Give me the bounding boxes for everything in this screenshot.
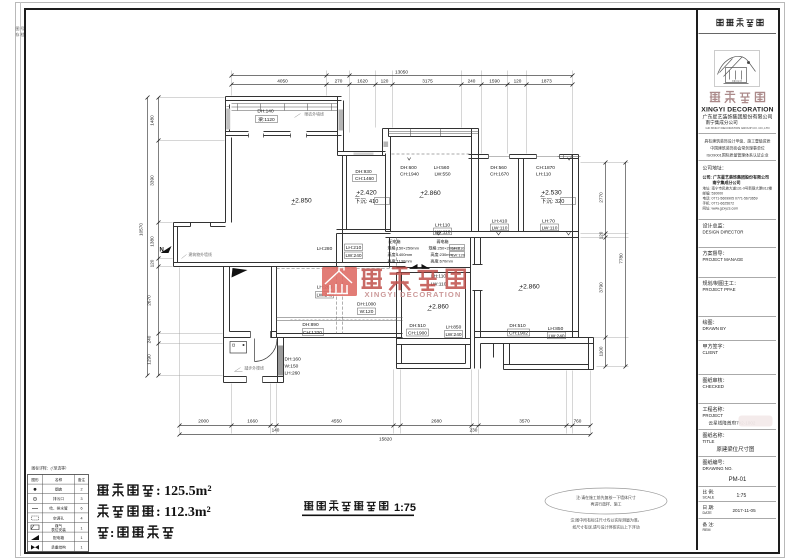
- svg-text:2: 2: [80, 488, 82, 492]
- svg-text:规划/制图主工：: 规划/制图主工：: [703, 280, 739, 287]
- svg-text:备注: 备注: [78, 477, 86, 482]
- svg-text:配电箱: 配电箱: [53, 535, 64, 540]
- svg-text:设计总监：: 设计总监：: [703, 223, 728, 230]
- svg-text::: :: [110, 525, 114, 540]
- svg-text:注:请在施工前先复核一下墙体尺寸: 注:请在施工前先复核一下墙体尺寸: [576, 495, 636, 500]
- svg-text:公司地址：: 公司地址：: [703, 165, 727, 172]
- svg-text:图纸审核：: 图纸审核：: [703, 377, 728, 384]
- svg-text:CHECKED: CHECKED: [703, 384, 724, 389]
- svg-text:原建梁位尺寸图: 原建梁位尺寸图: [717, 445, 755, 453]
- svg-text:空调孔: 空调孔: [53, 515, 64, 520]
- svg-text:南宁集成分公司: 南宁集成分公司: [706, 119, 739, 126]
- svg-text:ISO9001国际质量管理体系认证企业: ISO9001国际质量管理体系认证企业: [706, 153, 768, 158]
- svg-text:名称: 名称: [55, 477, 63, 482]
- svg-text:TITLE: TITLE: [703, 439, 715, 444]
- svg-text:SCALE: SCALE: [703, 496, 715, 500]
- svg-text:具有建筑装饰设计甲级、施工壹级资质: 具有建筑装饰设计甲级、施工壹级资质: [704, 139, 770, 144]
- svg-text:3: 3: [80, 497, 82, 501]
- svg-text:XINGYI DECORATION: XINGYI DECORATION: [701, 107, 773, 114]
- svg-text:2017-11-05: 2017-11-05: [733, 508, 757, 513]
- svg-text:中国建筑装饰协会常务理事单位: 中国建筑装饰协会常务理事单位: [710, 146, 765, 151]
- svg-text:XIN GYI: XIN GYI: [732, 79, 742, 83]
- svg-text:1: 1: [80, 526, 82, 530]
- svg-text:手机: 0771-6625672: 手机: 0771-6625672: [703, 201, 735, 206]
- svg-text:: 125.5m²: : 125.5m²: [156, 484, 212, 499]
- svg-text:1:75: 1:75: [394, 502, 416, 514]
- svg-text:地址: 南宁市民族大道131-9号新银大厦B12楼: 地址: 南宁市民族大道131-9号新银大厦B12楼: [703, 186, 773, 191]
- svg-text:南宁集成分公司: 南宁集成分公司: [713, 179, 741, 185]
- svg-text:PROJECT: PROJECT: [703, 413, 724, 418]
- svg-text:注:图中所有标注尺寸均以实际测量为准。: 注:图中所有标注尺寸均以实际测量为准。: [570, 518, 641, 523]
- svg-text:网址: www.gzxyzs.com: 网址: www.gzxyzs.com: [703, 206, 739, 211]
- svg-text:工程名称：: 工程名称：: [703, 406, 728, 413]
- svg-text:1: 1: [80, 546, 82, 550]
- svg-text:1:75: 1:75: [737, 493, 747, 499]
- svg-text:DRAWING NO.: DRAWING NO.: [703, 466, 733, 471]
- svg-text:DATE: DATE: [703, 511, 713, 515]
- svg-text:邮编: 530000: 邮编: 530000: [703, 191, 724, 196]
- svg-text:甲方签字：: 甲方签字：: [703, 343, 728, 350]
- svg-text:4: 4: [80, 516, 82, 520]
- svg-text:PROJECT MANAGE: PROJECT MANAGE: [703, 257, 744, 262]
- svg-text:绘图：: 绘图：: [703, 319, 718, 326]
- svg-text:备 注:: 备 注:: [703, 521, 715, 528]
- svg-text:如尺寸有误,请与设计师核实后上下浮动: 如尺寸有误,请与设计师核实后上下浮动: [572, 525, 639, 530]
- svg-text:方案督导：: 方案督导：: [703, 250, 728, 257]
- svg-text:PROJECT PPAE: PROJECT PPAE: [703, 287, 736, 292]
- svg-text:: 112.3m²: : 112.3m²: [156, 505, 211, 520]
- svg-text:DESIGN DIRECTOR: DESIGN DIRECTOR: [703, 230, 744, 235]
- svg-text:XINGYI DECORATION: XINGYI DECORATION: [364, 290, 461, 299]
- svg-text:排污口: 排污口: [53, 496, 64, 501]
- svg-text:图形: 图形: [31, 477, 39, 482]
- svg-text:比 例:: 比 例:: [703, 489, 715, 496]
- svg-text:图纸名称：: 图纸名称：: [703, 432, 728, 439]
- svg-text:给、排水管: 给、排水管: [49, 506, 68, 511]
- svg-text:GD XINGYI DECORATION GROUP CO.: GD XINGYI DECORATION GROUP CO. CO.,LTD: [705, 126, 769, 130]
- svg-text:REM: REM: [703, 528, 711, 532]
- svg-text:电话: 0771-5609905 0771-5673659: 电话: 0771-5609905 0771-5673659: [703, 196, 758, 201]
- svg-text:表位安装: 表位安装: [51, 527, 66, 532]
- svg-text:PM-01: PM-01: [729, 477, 747, 483]
- svg-text:烟囱: 烟囱: [55, 487, 63, 492]
- svg-text:6: 6: [80, 507, 82, 511]
- svg-text:公司: 广东星艺装饰集团股份有限公司: 公司: 广东星艺装饰集团股份有限公司: [703, 174, 769, 180]
- svg-text:承重结构: 承重结构: [51, 545, 66, 550]
- svg-text:DRAWN BY: DRAWN BY: [703, 326, 727, 331]
- svg-text:再进行放样、施工: 再进行放样、施工: [590, 502, 621, 507]
- svg-text:1: 1: [80, 536, 82, 540]
- svg-text:CLIENT: CLIENT: [703, 350, 719, 355]
- svg-text:图纸编号：: 图纸编号：: [703, 459, 728, 466]
- svg-text:图标详释：(（型选等）: 图标详释：(（型选等）: [32, 466, 69, 471]
